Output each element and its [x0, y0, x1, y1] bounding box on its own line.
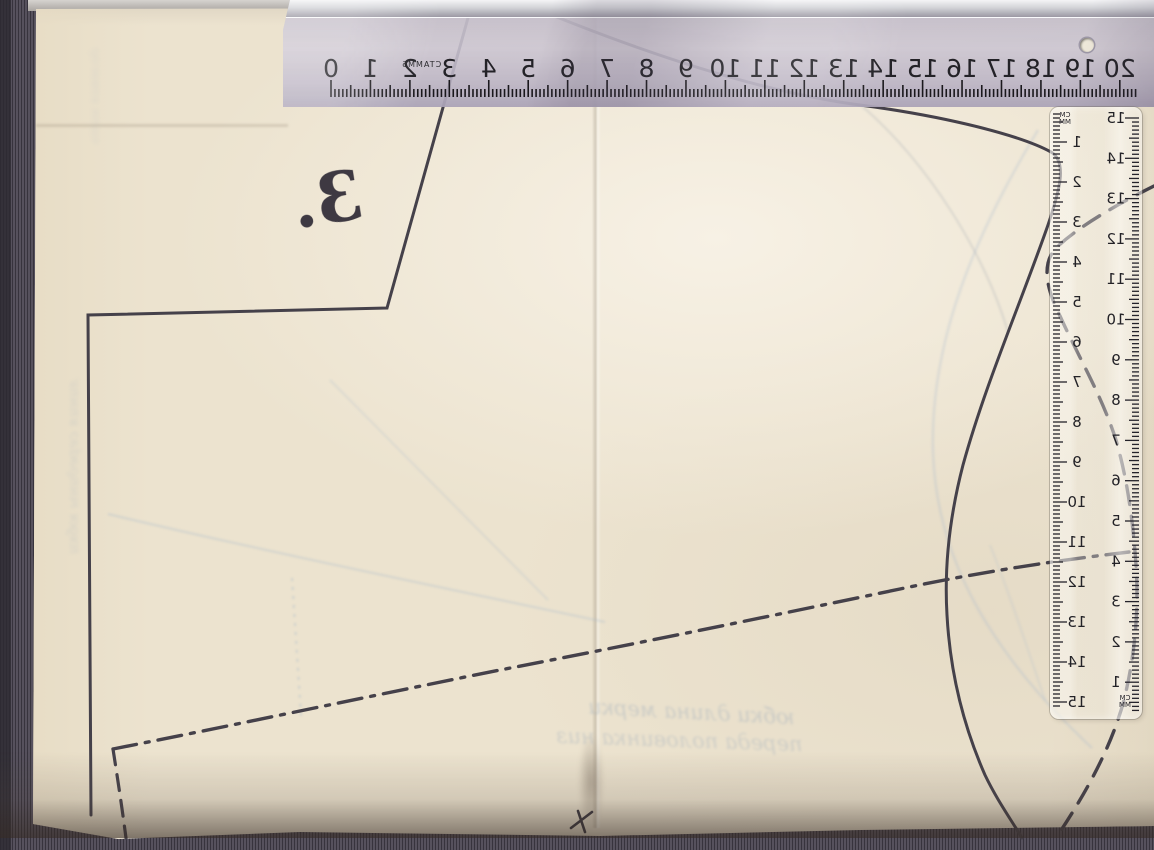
- ruler-number: 9: [1072, 453, 1082, 471]
- ruler-number: 8: [639, 54, 655, 83]
- ruler-number: 3: [1072, 213, 1082, 231]
- ruler-number: 0: [323, 54, 339, 83]
- ruler-number: 16: [946, 54, 978, 83]
- ruler-hanging-hole: [1080, 38, 1094, 52]
- ruler-number: 14: [867, 54, 899, 83]
- ruler-number: 1: [1072, 133, 1082, 151]
- transparent-ruler-scale: 1234567891011121314151514131211109876543…: [1050, 107, 1142, 719]
- ruler-number: 14: [1106, 149, 1125, 167]
- ruler-number: 14: [1067, 653, 1086, 671]
- pattern-lines-layer: [0, 0, 1154, 850]
- ruler-number: 7: [599, 54, 615, 83]
- ruler-number: 13: [1067, 613, 1086, 631]
- ruler-number: 15: [1106, 109, 1125, 127]
- ruler-number: 10: [1067, 493, 1086, 511]
- ruler-number: 4: [481, 54, 497, 83]
- ruler-number: 12: [788, 54, 820, 83]
- ruler-number: 4: [1111, 552, 1121, 570]
- ruler-number: 5: [520, 54, 536, 83]
- ruler-number: 3: [1111, 593, 1121, 611]
- ruler-number: 7: [1072, 373, 1082, 391]
- ruler-number: 20: [1104, 54, 1136, 83]
- ruler-number: 2: [1111, 633, 1121, 651]
- ruler-number: 8: [1072, 413, 1082, 431]
- ruler-number: 6: [560, 54, 576, 83]
- ruler-number: 9: [1111, 351, 1121, 369]
- scanned-pattern-scene: юбки длина мерки переда половинка низ ли…: [0, 0, 1154, 850]
- page-curl-shadow: [0, 752, 1154, 838]
- side-seam-solid-curve: [520, 2, 1060, 838]
- metal-ruler-edge: [283, 0, 1154, 18]
- ruler-number: 8: [1111, 391, 1121, 409]
- transparent-ruler: 1234567891011121314151514131211109876543…: [1050, 107, 1142, 719]
- ruler-number: 5: [1111, 512, 1121, 530]
- ruler-number: 15: [1067, 693, 1086, 711]
- ruler-number: 4: [1072, 253, 1082, 271]
- hem-dash-dot-line: [113, 552, 1129, 749]
- ruler-number: 7: [1111, 431, 1121, 449]
- ruler-number: 6: [1111, 472, 1121, 490]
- ruler-number: 18: [1025, 54, 1057, 83]
- ruler-number: 12: [1067, 573, 1086, 591]
- metal-ruler: 01234567891011121314151617181920 CTAMM5: [283, 0, 1154, 107]
- ruler-number: 12: [1106, 230, 1125, 248]
- ruler-number: 13: [1106, 190, 1125, 208]
- ruler-number: 11: [749, 54, 781, 83]
- ruler-number: 11: [1106, 270, 1125, 288]
- ruler-number: 10: [1106, 311, 1125, 329]
- ruler-number: 11: [1067, 533, 1086, 551]
- ruler-number: 1: [1111, 673, 1121, 691]
- ruler-number: 5: [1072, 293, 1082, 311]
- pattern-outline-solid: [88, 0, 473, 815]
- pattern-piece-number: 3.: [286, 155, 369, 245]
- ruler-number: 1: [362, 54, 378, 83]
- ruler-number: 13: [828, 54, 860, 83]
- ruler-maker-mark: CTAMM5: [401, 60, 441, 69]
- unit-label-bottom: CMMM: [1114, 695, 1136, 709]
- ruler-number: 2: [1072, 173, 1082, 191]
- unit-label-top: CMMM: [1054, 112, 1076, 126]
- ruler-number: 3: [441, 54, 457, 83]
- ruler-number: 10: [709, 54, 741, 83]
- ruler-number: 6: [1072, 333, 1082, 351]
- ruler-number: 17: [986, 54, 1018, 83]
- ruler-number: 15: [907, 54, 939, 83]
- ruler-number: 19: [1064, 54, 1096, 83]
- ruler-number: 9: [678, 54, 694, 83]
